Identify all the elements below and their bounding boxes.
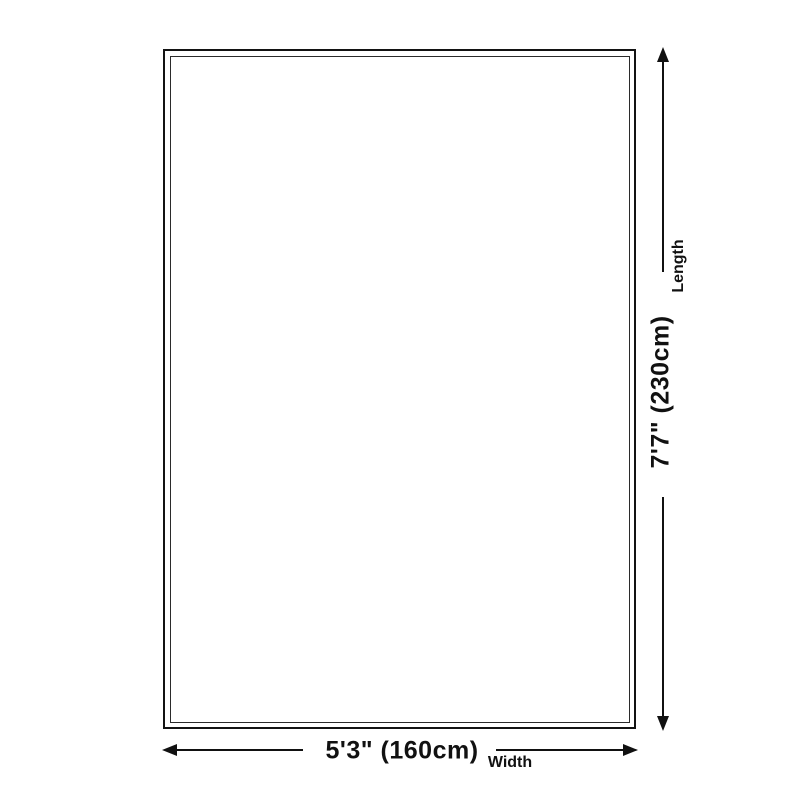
length-value-label: 7'7" (230cm) bbox=[647, 315, 676, 468]
width-arrow-line-right bbox=[496, 749, 623, 751]
width-axis-label: Width bbox=[488, 754, 532, 772]
length-axis-label: Length bbox=[670, 239, 688, 292]
width-arrow-line-left bbox=[174, 749, 303, 751]
rug-inner-outline bbox=[170, 56, 630, 723]
width-value-label: 5'3" (160cm) bbox=[325, 737, 478, 766]
length-arrow-line-top bbox=[662, 58, 664, 272]
rug-outline bbox=[163, 49, 636, 729]
length-arrow-down-icon bbox=[657, 716, 669, 731]
rug-size-diagram: Length 7'7" (230cm) 5'3" (160cm) Width bbox=[0, 0, 800, 800]
length-arrow-line-bottom bbox=[662, 497, 664, 717]
width-arrow-right-icon bbox=[623, 744, 638, 756]
